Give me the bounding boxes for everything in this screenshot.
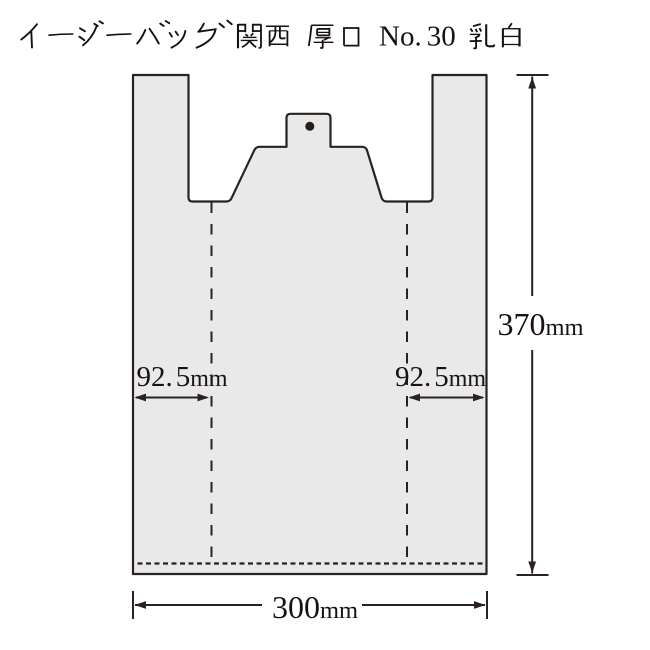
svg-text:No.30: No.30 bbox=[379, 21, 456, 53]
svg-text:92.5mm: 92.5mm bbox=[395, 361, 486, 393]
svg-text:92.5mm: 92.5mm bbox=[137, 361, 228, 393]
svg-text:370mm: 370mm bbox=[498, 306, 584, 342]
svg-text:300mm: 300mm bbox=[272, 589, 358, 625]
